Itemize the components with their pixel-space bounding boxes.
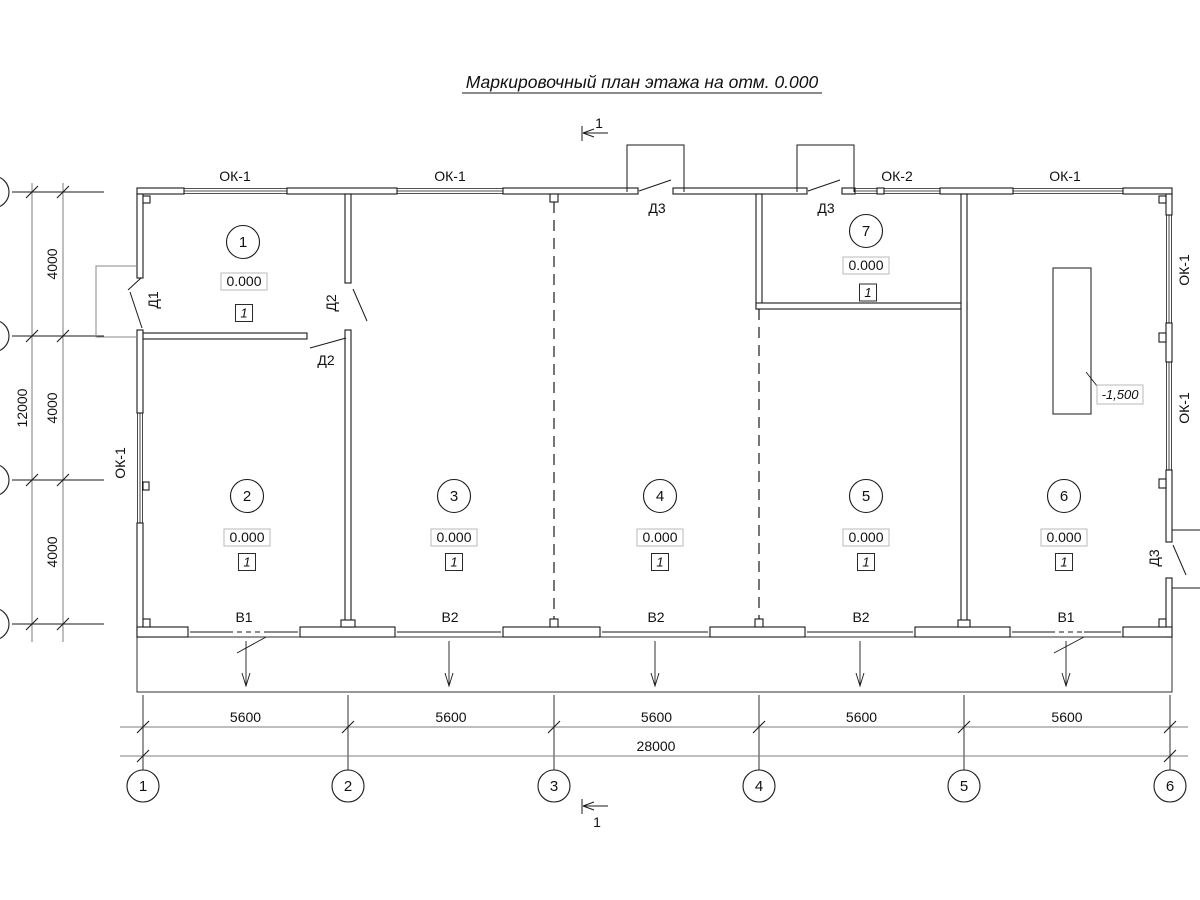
corner-post <box>143 619 150 627</box>
window-ok1-right-a <box>1167 215 1172 323</box>
axis-number-3: 3 <box>550 778 558 795</box>
room-number: 2 <box>243 488 251 505</box>
floor-type: 1 <box>243 555 250 570</box>
elevation-value: 0.000 <box>848 257 883 273</box>
dim-4000-3: 4000 <box>44 536 60 567</box>
door-mark-d2-room: Д2 <box>317 352 334 368</box>
room-number: 6 <box>1060 488 1068 505</box>
room-5-annotation: 5 0.000 1 <box>843 480 889 571</box>
room-6-annotation: 6 0.000 1 <box>1041 480 1087 571</box>
gate-mark-v2-room4: В2 <box>647 609 664 625</box>
door-d2-wall-leaf <box>353 289 367 321</box>
left-entrance-porch <box>96 266 137 337</box>
gate-mark-v1-room6: В1 <box>1057 609 1074 625</box>
floor-type: 1 <box>240 306 247 321</box>
section-number: 1 <box>595 115 603 131</box>
window-ok1-left <box>138 413 149 523</box>
dim-28000: 28000 <box>637 738 676 754</box>
window-ok1-right-b <box>1167 362 1172 470</box>
drawing-title: Маркировочный план этажа на отм. 0.000 <box>466 72 819 92</box>
wall-axis2-upper <box>345 194 351 283</box>
room7-south-wall <box>756 303 967 309</box>
window-mark-ok1-top-b: ОК-1 <box>434 168 466 184</box>
window-ok1-top-b <box>397 189 503 194</box>
pit: -1,500 <box>1053 268 1143 414</box>
bottom-dimension-system: 5600 5600 5600 5600 5600 28000 1 2 3 4 5… <box>120 695 1188 802</box>
floor-plan-drawing: Маркировочный план этажа на отм. 0.000 1… <box>0 0 1200 900</box>
room-1-annotation: 1 0.000 1 <box>221 226 267 322</box>
mullion-post <box>1159 333 1166 342</box>
dim-4000-1: 4000 <box>44 248 60 279</box>
gate-v2-room3 <box>397 632 501 686</box>
axis-number-5: 5 <box>960 778 968 795</box>
dim-5600-4: 5600 <box>846 709 877 725</box>
gate-mark-v1-room2: В1 <box>235 609 252 625</box>
room-number: 1 <box>239 234 247 251</box>
dim-5600-2: 5600 <box>435 709 466 725</box>
room-2-annotation: 2 0.000 1 <box>224 480 270 571</box>
door-mark-d3-vest2: Д3 <box>817 200 834 216</box>
corner-post <box>1159 196 1166 203</box>
door-d2-room-leaf <box>310 338 346 348</box>
gate-v1-room2 <box>190 632 298 686</box>
gate-mark-v2-room3: В2 <box>441 609 458 625</box>
floor-type: 1 <box>1060 555 1067 570</box>
dim-5600-3: 5600 <box>641 709 672 725</box>
wall-axis2-lower <box>345 330 351 627</box>
floor-type: 1 <box>656 555 663 570</box>
window-mark-ok1-right-b: ОК-1 <box>1176 392 1192 424</box>
room-number: 4 <box>656 488 664 505</box>
elevation-value: 0.000 <box>229 529 264 545</box>
wall-footing <box>341 620 355 627</box>
door-leaves <box>128 180 1186 575</box>
elevation-value: 0.000 <box>226 273 261 289</box>
gate-mark-labels: В1 В2 В2 В2 В1 <box>235 609 1074 625</box>
window-mark-ok1-right-a: ОК-1 <box>1176 254 1192 286</box>
window-mark-ok1-top-c: ОК-1 <box>1049 168 1081 184</box>
right-wall <box>1159 194 1172 637</box>
window-mark-ok2-top: ОК-2 <box>881 168 913 184</box>
door-d3-vest2-leaf <box>808 180 840 191</box>
door-mark-d3-vest1: Д3 <box>648 200 665 216</box>
gate-openings <box>190 632 1121 686</box>
wall-footing <box>958 620 970 627</box>
dim-5600-5: 5600 <box>1051 709 1082 725</box>
floor-type: 1 <box>450 555 457 570</box>
door-mark-d1: Д1 <box>145 291 161 308</box>
dim-4000-2: 4000 <box>44 392 60 423</box>
elevation-value: 0.000 <box>848 529 883 545</box>
gate-v1-room6 <box>1012 632 1121 686</box>
section-mark-bottom: 1 <box>582 799 608 830</box>
wall-axis5 <box>961 194 967 627</box>
axis-number-1: 1 <box>139 778 147 795</box>
window-ok2-top <box>855 188 940 194</box>
pit-elevation-value: -1,500 <box>1102 387 1140 402</box>
right-entrance-porch <box>1172 530 1200 588</box>
top-wall <box>137 188 1172 194</box>
left-dimension-system: 4000 4000 4000 12000 <box>0 176 104 642</box>
axis-number-2: 2 <box>344 778 352 795</box>
room-7-annotation: 7 0.000 1 <box>843 215 889 302</box>
door-d3-vest1-leaf <box>639 180 671 191</box>
door-d1-leaf <box>128 278 141 290</box>
floor-type: 1 <box>864 285 871 300</box>
window-mark-ok1-left: ОК-1 <box>112 447 128 479</box>
room-4-annotation: 4 0.000 1 <box>637 480 683 571</box>
drawing-sheet: Маркировочный план этажа на отм. 0.000 1… <box>0 0 1200 900</box>
axis-number-4: 4 <box>755 778 763 795</box>
window-ok1-top-a <box>184 189 287 194</box>
corner-post <box>1159 619 1166 627</box>
room-number: 7 <box>862 223 870 240</box>
row-axis-bubble <box>0 464 9 496</box>
room7-west-wall <box>756 194 762 309</box>
axis-number-6: 6 <box>1166 778 1174 795</box>
section-number: 1 <box>593 814 601 830</box>
window-ok1-top-c <box>1013 189 1123 194</box>
row-axis-bubble <box>0 176 9 208</box>
room-number: 5 <box>862 488 870 505</box>
room-number: 3 <box>450 488 458 505</box>
room1-south-wall <box>143 333 307 339</box>
door-mark-d2-wall: Д2 <box>323 294 339 311</box>
left-wall <box>137 194 150 637</box>
pit-outline <box>1053 268 1091 414</box>
elevation-value: 0.000 <box>436 529 471 545</box>
elevation-value: 0.000 <box>1046 529 1081 545</box>
floor-type: 1 <box>862 555 869 570</box>
gate-v2-room4 <box>602 632 708 686</box>
room-3-annotation: 3 0.000 1 <box>431 480 477 571</box>
mullion-post <box>1159 479 1166 488</box>
gate-v2-room5 <box>807 632 913 686</box>
row-axis-bubble <box>0 320 9 352</box>
row-axis-bubble <box>0 608 9 640</box>
dim-12000: 12000 <box>14 388 30 427</box>
door-d1-leaf <box>130 292 142 328</box>
elevation-value: 0.000 <box>642 529 677 545</box>
section-mark-top: 1 <box>582 115 608 141</box>
gate-mark-v2-room5: В2 <box>852 609 869 625</box>
dim-5600-1: 5600 <box>230 709 261 725</box>
corner-post <box>143 196 150 203</box>
window-mark-ok1-top-a: ОК-1 <box>219 168 251 184</box>
door-mark-d3-right: Д3 <box>1146 549 1162 566</box>
door-d3-right-leaf <box>1173 545 1186 575</box>
